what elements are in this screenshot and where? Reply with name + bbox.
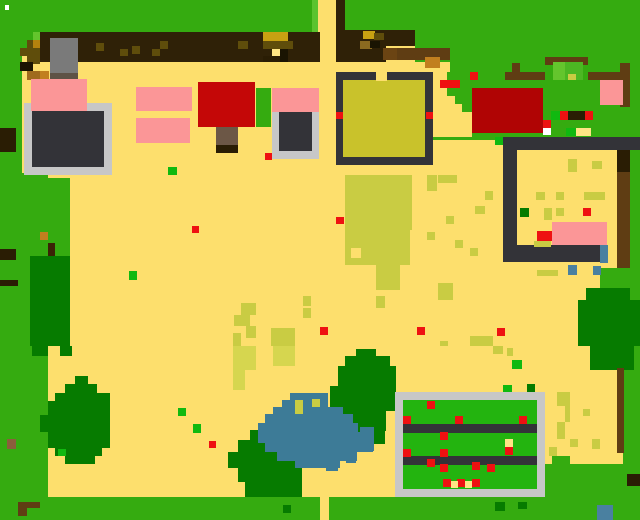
grass-dg2 [518, 502, 527, 509]
soil-dot-2 [120, 49, 128, 56]
tree-a6 [48, 432, 110, 448]
yellow-under-1 [336, 62, 433, 72]
dot-g5 [178, 408, 186, 416]
lily-2 [312, 399, 320, 407]
olive-r4 [570, 439, 578, 447]
wedge-1 [433, 88, 447, 96]
berry-13 [443, 479, 451, 487]
paddock-left [503, 137, 517, 250]
sprout-1 [505, 439, 513, 447]
dotrow-red2 [585, 111, 593, 120]
coop-red-pixel [543, 120, 551, 128]
olive-sat-9 [438, 283, 453, 300]
shed-roof [272, 88, 319, 112]
tree-e-trunk [617, 368, 624, 453]
leftbar-1 [0, 249, 16, 260]
berry-9 [427, 459, 435, 467]
berry-5 [440, 432, 448, 440]
tree-b4 [238, 468, 302, 482]
berry-1 [427, 401, 435, 409]
soil-dot-5 [160, 41, 168, 49]
paddock-top[interactable] [503, 137, 640, 150]
barn-door [216, 127, 238, 145]
berry-11 [472, 462, 480, 470]
paddock-tuft-4 [556, 192, 564, 200]
olive-s3 [246, 326, 256, 338]
paddock-tuft-5 [584, 192, 605, 200]
paddock-pink [552, 222, 607, 245]
dot-r3 [336, 217, 344, 224]
pond-1 [290, 393, 328, 400]
tree-a3 [55, 393, 110, 401]
berry-8 [505, 447, 513, 455]
tree-trunk-top [383, 48, 397, 60]
olive-sat-5 [446, 216, 454, 224]
berry-2 [403, 416, 411, 424]
olive-r3 [557, 422, 565, 439]
berry-4 [519, 416, 527, 424]
paddock-redblob [537, 231, 552, 241]
cluster-5 [20, 62, 33, 71]
paddock-tuft-2 [592, 161, 602, 169]
fence-r1 [505, 72, 545, 80]
pond-4[interactable] [265, 414, 353, 423]
dot-r6 [497, 328, 505, 336]
olive-sat-2 [438, 175, 457, 183]
olive-r7 [549, 447, 557, 456]
bottomright-grass2 [552, 456, 570, 464]
paddock-tuft-3 [536, 192, 545, 200]
fence-r2 [512, 63, 520, 73]
coop-green-dot [566, 128, 576, 136]
pond-6 [258, 432, 373, 443]
wedge-4 [433, 112, 472, 137]
tree-a-dot [58, 449, 66, 456]
olive-col-2 [245, 346, 256, 370]
dot-r4 [320, 327, 328, 335]
paddock-reddot [583, 208, 591, 216]
berry-15 [472, 479, 480, 487]
soil-dot-3 [132, 46, 140, 54]
farm-map[interactable] [0, 0, 640, 520]
chimney [50, 38, 78, 73]
field-reddot-l [336, 112, 343, 119]
corner-blue [597, 505, 613, 520]
pond-7 [265, 443, 373, 452]
tree-a8 [65, 456, 95, 464]
olive-r5 [583, 409, 590, 416]
pond-12 [360, 427, 374, 451]
cluster-3 [20, 48, 40, 56]
coop[interactable] [472, 88, 543, 133]
bush-pixel [33, 32, 40, 40]
leftbar-2 [0, 280, 18, 286]
olive-sat-8 [470, 248, 478, 256]
grass-dg3 [283, 505, 291, 513]
garden-bar-2 [403, 456, 537, 465]
wedge-2 [433, 96, 455, 104]
paddock-corner-dot [495, 137, 503, 145]
farmhouse-interior [32, 111, 104, 167]
olive-sat-7 [455, 240, 463, 248]
farmhouse-roof [31, 79, 87, 111]
paddock-bottom [503, 245, 607, 262]
dot-r1 [192, 226, 199, 233]
paddock-tuft-7 [544, 208, 552, 220]
path-top-light [312, 0, 318, 33]
right-grass-b [600, 268, 640, 290]
shed-window [279, 112, 312, 151]
sprout-3 [465, 481, 472, 488]
olive-s1 [241, 303, 256, 315]
trough-1 [568, 265, 577, 275]
olive-r1 [557, 392, 570, 406]
garden-bed [403, 400, 537, 489]
field-interior [343, 80, 425, 157]
field-reddot-r [426, 112, 433, 119]
dot-g4 [512, 360, 522, 369]
olive-sat-1 [427, 175, 437, 191]
soil-block [263, 56, 280, 62]
soil2-dot [374, 33, 384, 40]
berry-14 [457, 479, 465, 487]
gold-bar-under [263, 41, 293, 49]
tree-e2[interactable] [578, 300, 640, 346]
tree-left-orange [40, 232, 48, 240]
dotrow-green [551, 111, 560, 120]
olive-s2 [234, 315, 250, 326]
barn[interactable] [198, 82, 255, 127]
tree-left-b2 [60, 346, 72, 356]
black-dot [280, 49, 288, 62]
fence-r4 [588, 72, 622, 80]
olive-sat-3 [485, 191, 493, 200]
log-l2 [18, 508, 27, 516]
white-pixel [5, 5, 9, 10]
berry-7 [440, 449, 448, 457]
olive-r2 [565, 406, 570, 422]
olive-hole [351, 248, 361, 258]
paddock-trunk [617, 172, 630, 268]
pond-5 [258, 423, 358, 432]
sprout-2 [451, 481, 458, 488]
tree-a5 [40, 415, 110, 432]
tree-left-b1 [32, 346, 48, 356]
olive-g2 [440, 341, 448, 346]
paddock-trunk-top [617, 150, 630, 172]
olive-blob-tail [376, 265, 400, 290]
olive-g4 [507, 348, 513, 356]
barn-door-base [216, 145, 238, 153]
greenhouse-bar-1 [136, 87, 192, 111]
corner-brown [627, 474, 640, 486]
paddock-tuft-1 [568, 159, 577, 172]
pond-8 [277, 452, 357, 461]
dot-g3 [503, 385, 512, 392]
olive-r6 [592, 439, 600, 449]
olive-dot-c [376, 296, 385, 308]
dotrow-red1 [560, 111, 568, 120]
soil-dot-6 [238, 41, 248, 49]
right-grass-c [623, 368, 640, 470]
berry-6 [403, 449, 411, 457]
dot-dg1 [527, 384, 535, 392]
dot-r7 [209, 441, 216, 448]
dot-r2 [265, 153, 272, 160]
dot-r5 [417, 327, 425, 335]
grass-dg1 [495, 502, 505, 511]
field-gap [376, 72, 387, 81]
paddock-greendot [520, 208, 529, 217]
pink-square [600, 80, 623, 105]
pond-10 [326, 461, 338, 471]
olive-dot-a [303, 296, 311, 306]
coop-pale-dot [576, 128, 591, 136]
dot-g2 [129, 271, 137, 280]
soil2-right [386, 30, 415, 46]
olive-g1 [470, 336, 493, 346]
olive-col-1 [233, 346, 245, 390]
tree-d1 [356, 349, 376, 356]
olive-s4 [233, 333, 241, 346]
path-top [318, 0, 336, 33]
olive-g3 [493, 346, 503, 354]
brown-dot [7, 439, 16, 449]
olive-sat-4 [475, 206, 485, 214]
trough-2 [593, 266, 601, 275]
tree-a4[interactable] [48, 401, 110, 415]
dot-g1 [168, 167, 177, 175]
soil2-col [336, 0, 345, 30]
lily-1 [295, 400, 303, 414]
paddock-tuft-6 [556, 208, 564, 216]
paddock-gate [600, 245, 608, 263]
red-dot-fence [470, 72, 478, 80]
tree-e3 [590, 346, 634, 370]
dot-g6 [193, 424, 201, 433]
tree-b5 [245, 482, 302, 497]
coop-white-pixel [543, 128, 551, 135]
soil-dot-1 [96, 43, 104, 51]
dotrow-brown [568, 111, 585, 120]
soil2-black [370, 41, 380, 48]
garden-bar-1 [403, 424, 537, 433]
tree-a2 [65, 384, 97, 393]
fence-top [397, 48, 450, 60]
pond-2 [282, 400, 328, 407]
tree-a1 [75, 376, 88, 384]
gold-bar [263, 32, 288, 41]
pond-11 [346, 450, 356, 463]
tree-d2 [345, 356, 390, 366]
greenhouse-bar-2 [136, 118, 190, 143]
soil-dot-4 [152, 49, 160, 56]
paddock-olive2 [537, 270, 558, 276]
red-bar [440, 80, 460, 88]
pale-dot-1 [272, 49, 280, 56]
bush-notch [568, 74, 576, 80]
berry-10 [440, 464, 448, 472]
tree-e1 [586, 288, 630, 300]
berry-3 [455, 416, 463, 424]
left-dark-block [0, 128, 16, 152]
tree-d3[interactable] [338, 366, 396, 386]
olive-blob-col [400, 175, 412, 230]
paddock-olive [534, 241, 551, 247]
olive-s5 [271, 328, 295, 346]
berry-12 [487, 464, 495, 472]
barn-green-strip [256, 88, 271, 127]
olive-dot-b [303, 308, 311, 318]
tree-left[interactable] [30, 256, 70, 346]
cluster-2 [33, 40, 40, 48]
wedge-3 [433, 104, 462, 112]
orange-block [425, 57, 440, 68]
path-bottom [320, 497, 329, 520]
olive-col-3 [273, 346, 295, 366]
olive-sat-6 [427, 232, 435, 240]
